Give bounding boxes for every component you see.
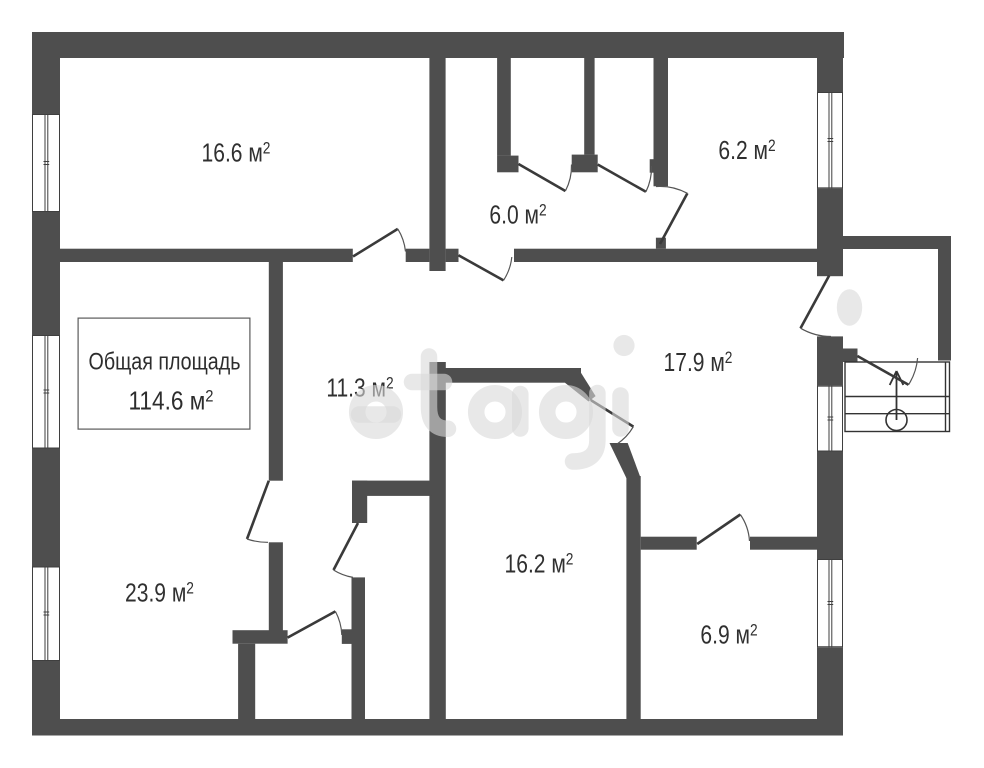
svg-text:6.0 м2: 6.0 м2 <box>489 201 546 230</box>
svg-text:6.9 м2: 6.9 м2 <box>700 621 757 650</box>
svg-text:16.2 м2: 16.2 м2 <box>505 550 574 579</box>
svg-text:16.6 м2: 16.6 м2 <box>202 139 271 168</box>
svg-text:6.2 м2: 6.2 м2 <box>718 137 775 166</box>
svg-text:23.9 м2: 23.9 м2 <box>125 579 194 608</box>
svg-text:114.6 м2: 114.6 м2 <box>129 387 214 416</box>
svg-text:Общая площадь: Общая площадь <box>89 348 241 375</box>
svg-text:17.9 м2: 17.9 м2 <box>664 349 733 378</box>
